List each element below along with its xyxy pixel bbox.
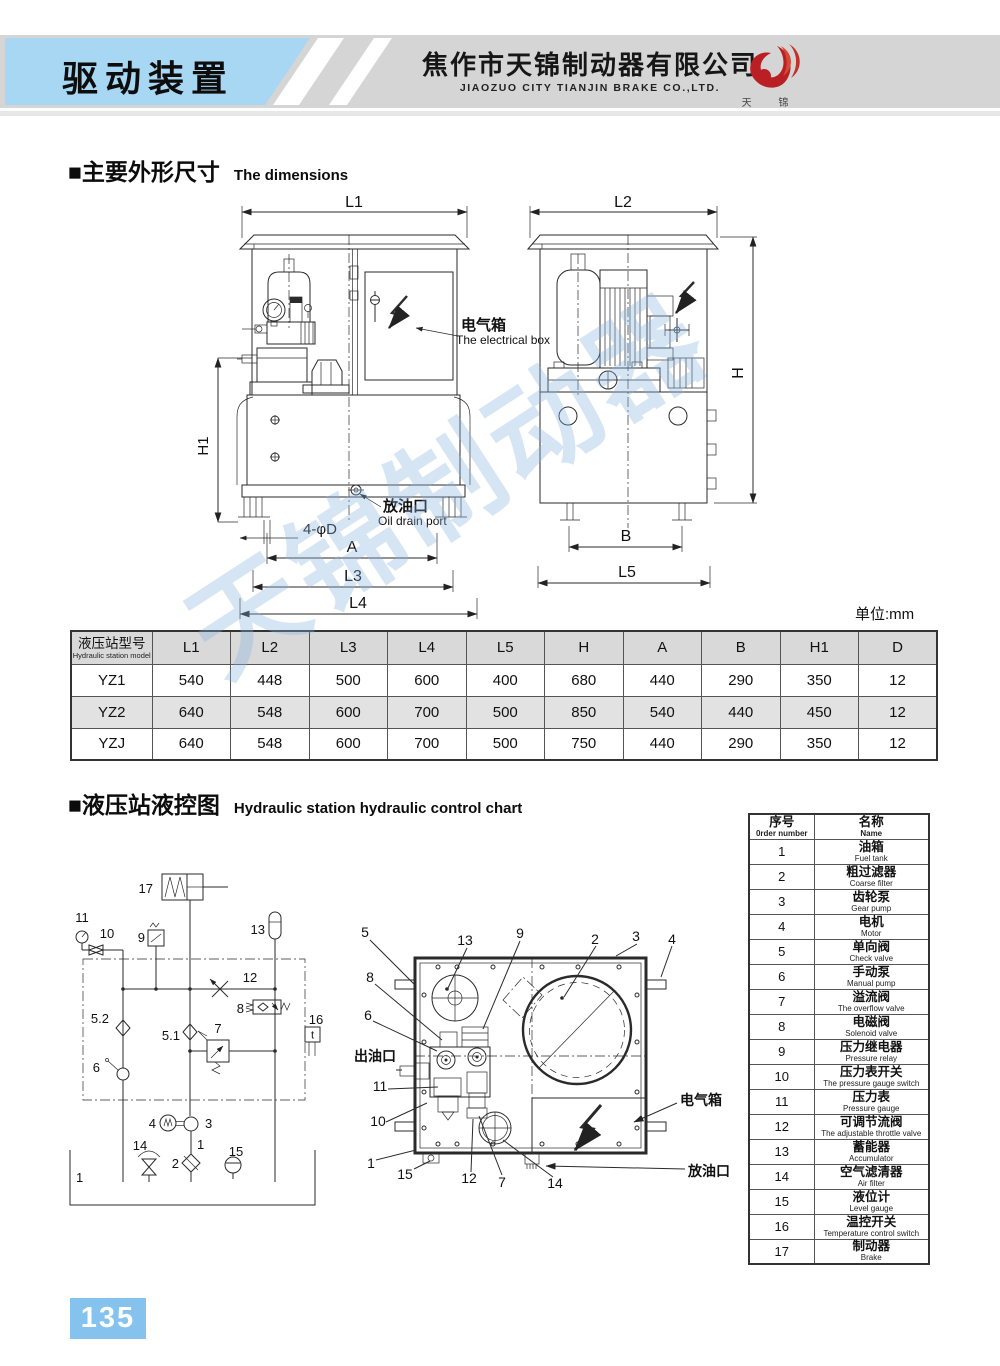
cell-name: 齿轮泵 Gear pump xyxy=(814,889,929,914)
part-name-cn: 可调节流阀 xyxy=(815,1116,929,1129)
part-name-cn: 齿轮泵 xyxy=(815,891,929,904)
cell-name: 蓄能器 Accumulator xyxy=(814,1139,929,1164)
callout: 2 xyxy=(172,1156,179,1171)
front-view: L1 xyxy=(195,194,550,619)
outlet-label: 出油口 xyxy=(354,1048,396,1064)
cell: 700 xyxy=(388,696,467,728)
cell: 400 xyxy=(466,664,545,696)
dim-label-l2: L2 xyxy=(614,194,632,211)
callout: 2 xyxy=(591,931,599,947)
callout: 5.2 xyxy=(91,1011,109,1026)
header-cell: D xyxy=(859,631,938,664)
motor-top xyxy=(523,976,631,1084)
header-cell: A xyxy=(623,631,702,664)
lightning-icon xyxy=(389,296,407,328)
cell: 600 xyxy=(309,696,388,728)
part-name-en: Fuel tank xyxy=(815,854,929,863)
cell-model: YZJ xyxy=(71,728,152,760)
callout: 8 xyxy=(237,1001,244,1016)
header-band-underline xyxy=(0,111,1000,116)
callout: 17 xyxy=(139,881,153,896)
page-title: 驱动装置 xyxy=(62,50,322,102)
cell-number: 16 xyxy=(749,1214,814,1239)
brake-symbol xyxy=(162,874,228,989)
header-cell: L1 xyxy=(152,631,231,664)
cell: 850 xyxy=(545,696,624,728)
callout: 15 xyxy=(397,1166,413,1182)
pump-assembly xyxy=(237,254,349,395)
part-name-en: Check valve xyxy=(815,954,929,963)
dim-label-l1: L1 xyxy=(345,194,363,211)
callout: 12 xyxy=(461,1170,477,1186)
callout: 11 xyxy=(373,1078,388,1094)
header-cell: L3 xyxy=(309,631,388,664)
dim-label-l3: L3 xyxy=(344,568,362,585)
callout: 12 xyxy=(243,970,257,985)
cell-name: 压力继电器 Pressure relay xyxy=(814,1039,929,1064)
part-name-en: Motor xyxy=(815,929,929,938)
table-row: 14 空气滤清器 Air filter xyxy=(749,1164,929,1189)
hydraulic-schematic: 1 17 11 10 9 13 xyxy=(60,860,370,1220)
callout: 6 xyxy=(364,1007,372,1023)
section2-title-cn: ■液压站液控图 xyxy=(68,786,220,820)
part-name-en: Manual pump xyxy=(815,979,929,988)
parts-header-no: 序号 0rder number xyxy=(749,814,814,839)
temp-switch-t: t xyxy=(311,1030,314,1042)
callout: 10 xyxy=(370,1113,386,1129)
cell: 548 xyxy=(231,696,310,728)
cell: 12 xyxy=(859,664,938,696)
cell-number: 15 xyxy=(749,1189,814,1214)
cell-number: 1 xyxy=(749,839,814,864)
tank-outline xyxy=(70,1150,315,1205)
part-name-cn: 压力表开关 xyxy=(815,1066,929,1079)
callout: 13 xyxy=(457,932,473,948)
cell: 290 xyxy=(702,728,781,760)
cell-name: 温控开关 Temperature control switch xyxy=(814,1214,929,1239)
handle xyxy=(646,980,666,989)
part-name-cn: 制动器 xyxy=(815,1240,929,1253)
dimension-table-header-row: 液压站型号 Hydraulic station model L1L2L3L4L5… xyxy=(71,631,937,664)
cell: 500 xyxy=(466,728,545,760)
table-row: 7 溢流阀 The overflow valve xyxy=(749,989,929,1014)
callout: 14 xyxy=(547,1175,563,1191)
handle xyxy=(646,1122,666,1131)
cell-number: 4 xyxy=(749,914,814,939)
ebox-label-cn: 电气箱 xyxy=(461,316,506,334)
dim-label-h1: H1 xyxy=(195,436,212,455)
cell-number: 10 xyxy=(749,1064,814,1089)
parts-table-body: 1 油箱 Fuel tank 2 粗过滤器 Coarse filter 3 xyxy=(749,839,929,1264)
cell: 350 xyxy=(780,664,859,696)
catalog-page: 驱动装置 焦作市天锦制动器有限公司 JIAOZUO CITY TIANJIN B… xyxy=(0,0,1000,1366)
header-model-cn: 液压站型号 xyxy=(72,636,152,651)
cell: 548 xyxy=(231,728,310,760)
unit-note: 单位:mm xyxy=(855,603,914,624)
table-row: 10 压力表开关 The pressure gauge switch xyxy=(749,1064,929,1089)
cell-name: 溢流阀 The overflow valve xyxy=(814,989,929,1014)
cell-number: 13 xyxy=(749,1139,814,1164)
cell: 350 xyxy=(780,728,859,760)
accumulator-symbol xyxy=(269,912,281,939)
solenoid-valve-symbol xyxy=(246,1000,290,1014)
callout: 9 xyxy=(138,930,145,945)
dim-label-b: B xyxy=(621,528,632,545)
section1-title-cn: ■主要外形尺寸 xyxy=(68,153,220,187)
key-switch xyxy=(371,291,380,322)
cell-name: 手动泵 Manual pump xyxy=(814,964,929,989)
dim-label-holes: 4-φD xyxy=(303,521,337,538)
table-row: YZ1 540 448 500 600 400 680 440 290 350 … xyxy=(71,664,937,696)
cell: 440 xyxy=(702,696,781,728)
part-name-cn: 单向阀 xyxy=(815,941,929,954)
part-name-en: The adjustable throttle valve xyxy=(815,1129,929,1138)
callout: 8 xyxy=(366,969,374,985)
part-name-en: Accumulator xyxy=(815,1154,929,1163)
table-row: 9 压力继电器 Pressure relay xyxy=(749,1039,929,1064)
part-name-cn: 电机 xyxy=(815,916,929,929)
drain-label-cn: 放油口 xyxy=(382,497,428,515)
part-name-cn: 压力继电器 xyxy=(815,1041,929,1054)
lightning-icon xyxy=(676,282,694,313)
accumulator-top xyxy=(432,975,478,1021)
parts-header-no-en: 0rder number xyxy=(750,829,814,838)
part-name-en: Pressure relay xyxy=(815,1054,929,1063)
company-logo-icon: 天 锦 xyxy=(737,40,807,112)
cell: 12 xyxy=(859,696,938,728)
table-row: 17 制动器 Brake xyxy=(749,1239,929,1264)
table-row: 2 粗过滤器 Coarse filter xyxy=(749,864,929,889)
table-row: 1 油箱 Fuel tank xyxy=(749,839,929,864)
table-row: 6 手动泵 Manual pump xyxy=(749,964,929,989)
cell: 12 xyxy=(859,728,938,760)
cell: 700 xyxy=(388,728,467,760)
table-row: 15 液位计 Level gauge xyxy=(749,1189,929,1214)
callout: 1 xyxy=(197,1137,204,1152)
header-cell: H1 xyxy=(780,631,859,664)
logo-text: 天 锦 xyxy=(742,96,801,109)
table-row: 11 压力表 Pressure gauge xyxy=(749,1089,929,1114)
cell-name: 单向阀 Check valve xyxy=(814,939,929,964)
section2-heading: ■液压站液控图 Hydraulic station hydraulic cont… xyxy=(68,786,522,820)
table-row: 12 可调节流阀 The adjustable throttle valve xyxy=(749,1114,929,1139)
part-name-en: Solenoid valve xyxy=(815,1029,929,1038)
cell-number: 9 xyxy=(749,1039,814,1064)
callout: 4 xyxy=(668,931,676,947)
gauge-switch-symbol xyxy=(89,945,123,955)
front-tank xyxy=(237,395,470,517)
part-name-en: Brake xyxy=(815,1253,929,1262)
motor-symbol xyxy=(160,1115,176,1131)
coupling-housing xyxy=(503,977,542,1018)
pressure-gauge-symbol xyxy=(76,931,89,950)
cell-number: 6 xyxy=(749,964,814,989)
part-name-cn: 溢流阀 xyxy=(815,991,929,1004)
header-model-en: Hydraulic station model xyxy=(72,651,152,660)
cell: 440 xyxy=(623,664,702,696)
callout: 16 xyxy=(309,1012,323,1027)
part-name-cn: 空气滤清器 xyxy=(815,1166,929,1179)
dimension-drawing: L1 xyxy=(180,188,800,628)
cell-name: 制动器 Brake xyxy=(814,1239,929,1264)
callout: 15 xyxy=(229,1144,243,1159)
cell-number: 14 xyxy=(749,1164,814,1189)
part-name-en: The pressure gauge switch xyxy=(815,1079,929,1088)
page-number: 135 xyxy=(70,1298,146,1339)
gear-pump-symbol xyxy=(184,1117,198,1131)
callout: 6 xyxy=(93,1060,100,1075)
parts-header-name: 名称 Name xyxy=(814,814,929,839)
callout-leaders xyxy=(370,940,685,1177)
table-row: 5 单向阀 Check valve xyxy=(749,939,929,964)
cell-number: 5 xyxy=(749,939,814,964)
side-view: L2 xyxy=(528,194,757,588)
cell-model: YZ2 xyxy=(71,696,152,728)
dimension-table-body: YZ1 540 448 500 600 400 680 440 290 350 … xyxy=(71,664,937,760)
table-row: 13 蓄能器 Accumulator xyxy=(749,1139,929,1164)
part-name-en: Temperature control switch xyxy=(815,1229,929,1238)
callout: 14 xyxy=(133,1138,147,1153)
cell-number: 2 xyxy=(749,864,814,889)
section1-heading: ■主要外形尺寸 The dimensions xyxy=(68,153,348,187)
cell-number: 7 xyxy=(749,989,814,1014)
station-top-view: 5 13 9 2 3 4 8 6 出油口 11 10 1 15 12 7 14 … xyxy=(350,900,740,1220)
part-name-cn: 压力表 xyxy=(815,1091,929,1104)
throttle-valve-symbol xyxy=(210,979,228,997)
cell: 750 xyxy=(545,728,624,760)
table-row: 4 电机 Motor xyxy=(749,914,929,939)
cell-name: 压力表开关 The pressure gauge switch xyxy=(814,1064,929,1089)
cell-number: 17 xyxy=(749,1239,814,1264)
cell-name: 电机 Motor xyxy=(814,914,929,939)
callout: 13 xyxy=(251,922,265,937)
cell-number: 11 xyxy=(749,1089,814,1114)
header-cell: L2 xyxy=(231,631,310,664)
drain-label-en: Oil drain port xyxy=(378,514,447,528)
cell: 640 xyxy=(152,728,231,760)
cell: 450 xyxy=(780,696,859,728)
table-row: 8 电磁阀 Solenoid valve xyxy=(749,1014,929,1039)
motor-assembly xyxy=(548,254,704,398)
header-cell: B xyxy=(702,631,781,664)
cell: 680 xyxy=(545,664,624,696)
callout: 9 xyxy=(516,925,524,941)
dimension-table: 液压站型号 Hydraulic station model L1L2L3L4L5… xyxy=(70,630,938,761)
cell: 600 xyxy=(309,728,388,760)
lightning-icon xyxy=(575,1105,601,1150)
air-filter-symbol xyxy=(138,1151,160,1182)
cell: 600 xyxy=(388,664,467,696)
callout: 10 xyxy=(100,926,114,941)
table-row: 16 温控开关 Temperature control switch xyxy=(749,1214,929,1239)
part-name-en: Pressure gauge xyxy=(815,1104,929,1113)
section2-title-en: Hydraulic station hydraulic control char… xyxy=(234,800,522,817)
parts-header-name-cn: 名称 xyxy=(815,816,929,829)
header-cell: L4 xyxy=(388,631,467,664)
callout: 7 xyxy=(214,1021,221,1036)
callout: 4 xyxy=(149,1116,156,1131)
cell: 500 xyxy=(309,664,388,696)
part-name-cn: 液位计 xyxy=(815,1191,929,1204)
part-name-cn: 电磁阀 xyxy=(815,1016,929,1029)
cell: 448 xyxy=(231,664,310,696)
parts-table: 序号 0rder number 名称 Name 1 油箱 Fuel tank xyxy=(748,813,930,1265)
callout: 5 xyxy=(361,924,369,940)
cell-name: 液位计 Level gauge xyxy=(814,1189,929,1214)
dim-label-l4: L4 xyxy=(349,595,367,612)
cell-name: 空气滤清器 Air filter xyxy=(814,1164,929,1189)
callout: 5.1 xyxy=(162,1028,180,1043)
part-name-cn: 油箱 xyxy=(815,841,929,854)
ebox-label-en: The electrical box xyxy=(456,333,550,347)
cell-model: YZ1 xyxy=(71,664,152,696)
handle xyxy=(395,1122,415,1131)
part-name-en: Air filter xyxy=(815,1179,929,1188)
feet xyxy=(423,1153,539,1169)
cell: 290 xyxy=(702,664,781,696)
manifold-box xyxy=(83,959,305,1100)
part-name-cn: 手动泵 xyxy=(815,966,929,979)
callout: 3 xyxy=(632,928,640,944)
table-row: YZ2 640 548 600 700 500 850 540 440 450 … xyxy=(71,696,937,728)
drain-label: 放油口 xyxy=(687,1163,730,1179)
part-name-en: Gear pump xyxy=(815,904,929,913)
cell: 500 xyxy=(466,696,545,728)
callout: 7 xyxy=(498,1174,506,1190)
callout: 11 xyxy=(75,910,89,925)
logo-swirl xyxy=(750,46,790,88)
dim-label-l5: L5 xyxy=(618,564,636,581)
level-gauge-symbol xyxy=(225,1157,241,1179)
parts-header-no-cn: 序号 xyxy=(750,816,814,829)
part-name-en: Level gauge xyxy=(815,1204,929,1213)
electrical-box-front xyxy=(365,272,453,380)
cell: 440 xyxy=(623,728,702,760)
cell-name: 电磁阀 Solenoid valve xyxy=(814,1014,929,1039)
cell: 540 xyxy=(623,696,702,728)
overflow-valve-symbol xyxy=(188,1031,277,1074)
table-row: YZJ 640 548 600 700 500 750 440 290 350 … xyxy=(71,728,937,760)
cell: 640 xyxy=(152,696,231,728)
cell-name: 油箱 Fuel tank xyxy=(814,839,929,864)
section1-title-en: The dimensions xyxy=(234,167,348,184)
table-row: 3 齿轮泵 Gear pump xyxy=(749,889,929,914)
cell-number: 3 xyxy=(749,889,814,914)
part-name-en: Coarse filter xyxy=(815,879,929,888)
part-name-cn: 粗过滤器 xyxy=(815,866,929,879)
cell: 540 xyxy=(152,664,231,696)
dim-label-a: A xyxy=(347,539,358,556)
callout: 3 xyxy=(205,1116,212,1131)
header-model-cell: 液压站型号 Hydraulic station model xyxy=(71,631,152,664)
cell-name: 可调节流阀 The adjustable throttle valve xyxy=(814,1114,929,1139)
logo-dot xyxy=(757,69,771,83)
header-cell: L5 xyxy=(466,631,545,664)
cell-name: 粗过滤器 Coarse filter xyxy=(814,864,929,889)
manual-pump-symbol xyxy=(106,1059,130,1081)
cell-number: 12 xyxy=(749,1114,814,1139)
cell-name: 压力表 Pressure gauge xyxy=(814,1089,929,1114)
part-name-cn: 温控开关 xyxy=(815,1216,929,1229)
header-cell: H xyxy=(545,631,624,664)
callout: 1 xyxy=(367,1155,375,1171)
parts-table-header-row: 序号 0rder number 名称 Name xyxy=(749,814,929,839)
part-name-en: The overflow valve xyxy=(815,1004,929,1013)
ebox-label: 电气箱 xyxy=(680,1092,722,1108)
cell-number: 8 xyxy=(749,1014,814,1039)
dim-label-h: H xyxy=(730,367,747,379)
part-name-cn: 蓄能器 xyxy=(815,1141,929,1154)
callout: 1 xyxy=(76,1170,83,1185)
parts-header-name-en: Name xyxy=(815,829,929,838)
pressure-relay-symbol xyxy=(148,923,164,989)
